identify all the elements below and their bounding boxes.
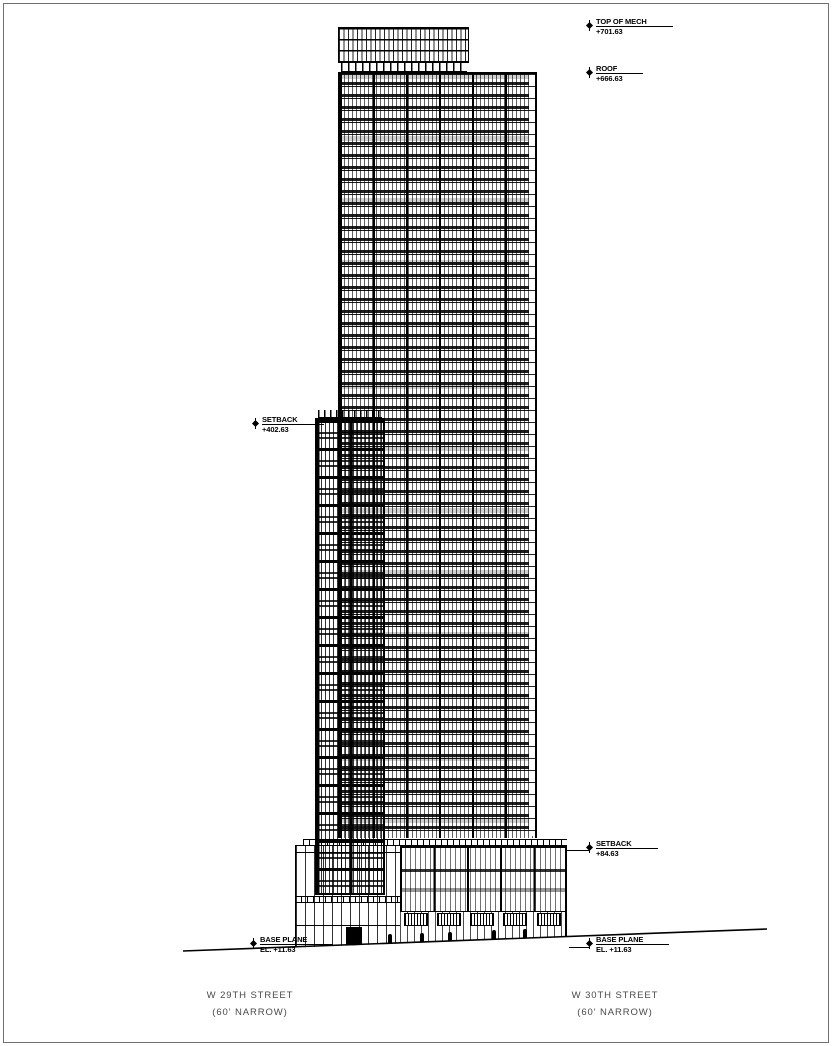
- street-name: W 29TH STREET: [170, 987, 330, 1004]
- marker-value: +84.63: [596, 849, 658, 858]
- datum-diamond-icon: [586, 69, 593, 76]
- datum-diamond-icon: [586, 940, 593, 947]
- datum-diamond-icon: [586, 844, 593, 851]
- street-label-w29: W 29TH STREET (60' NARROW): [170, 987, 330, 1021]
- street-note: (60' NARROW): [170, 1004, 330, 1021]
- storefront-awning: [437, 913, 461, 926]
- storefront-awning: [503, 913, 527, 926]
- storefront-awning: [537, 913, 561, 926]
- person-figure: [420, 933, 424, 945]
- podium-storefront: [400, 912, 565, 945]
- marker-label: BASE PLANE: [260, 936, 333, 945]
- storefront-awning: [470, 913, 494, 926]
- elevation-marker-setback-upper: SETBACK +402.63: [253, 416, 324, 434]
- elevation-marker-base-plane-right: BASE PLANE EL. +11.63: [587, 936, 669, 954]
- marker-label: SETBACK: [596, 840, 658, 849]
- tower-right-edge-strip: [529, 74, 535, 836]
- marker-value: EL. +11.63: [596, 945, 669, 954]
- elevation-marker-setback-lower: SETBACK +84.63: [587, 840, 658, 858]
- mechanical-roof-railing: [341, 63, 467, 72]
- marker-value: +701.63: [596, 27, 673, 36]
- street-label-w30: W 30TH STREET (60' NARROW): [535, 987, 695, 1021]
- mechanical-bulkhead: [338, 27, 469, 63]
- datum-diamond-icon: [250, 940, 257, 947]
- elevation-marker-roof: ROOF +666.63: [587, 65, 643, 83]
- marker-label: SETBACK: [262, 416, 324, 425]
- balcony-tower-facade: [315, 418, 385, 895]
- datum-diamond-icon: [252, 420, 259, 427]
- marker-label: TOP OF MECH: [596, 18, 673, 27]
- person-figure: [523, 929, 527, 941]
- podium-glazing: [400, 846, 565, 912]
- person-figure: [388, 934, 392, 946]
- elevation-marker-base-plane-left: BASE PLANE EL. +11.63: [251, 936, 333, 954]
- elevation-drawing-sheet: TOP OF MECH +701.63 ROOF +666.63 SETBACK…: [0, 0, 832, 1046]
- entrance-door: [346, 927, 362, 948]
- street-note: (60' NARROW): [535, 1004, 695, 1021]
- person-figure: [492, 930, 496, 942]
- marker-value: +402.63: [262, 425, 324, 434]
- person-figure: [448, 932, 452, 944]
- elevation-marker-top-of-mech: TOP OF MECH +701.63: [587, 18, 673, 36]
- marker-value: +666.63: [596, 74, 643, 83]
- street-name: W 30TH STREET: [535, 987, 695, 1004]
- storefront-awning: [404, 913, 428, 926]
- marker-label: ROOF: [596, 65, 643, 74]
- balcony-tower-parapet: [318, 410, 382, 418]
- marker-label: BASE PLANE: [596, 936, 669, 945]
- datum-diamond-icon: [586, 22, 593, 29]
- right-podium: [400, 846, 567, 945]
- marker-value: EL. +11.63: [260, 945, 333, 954]
